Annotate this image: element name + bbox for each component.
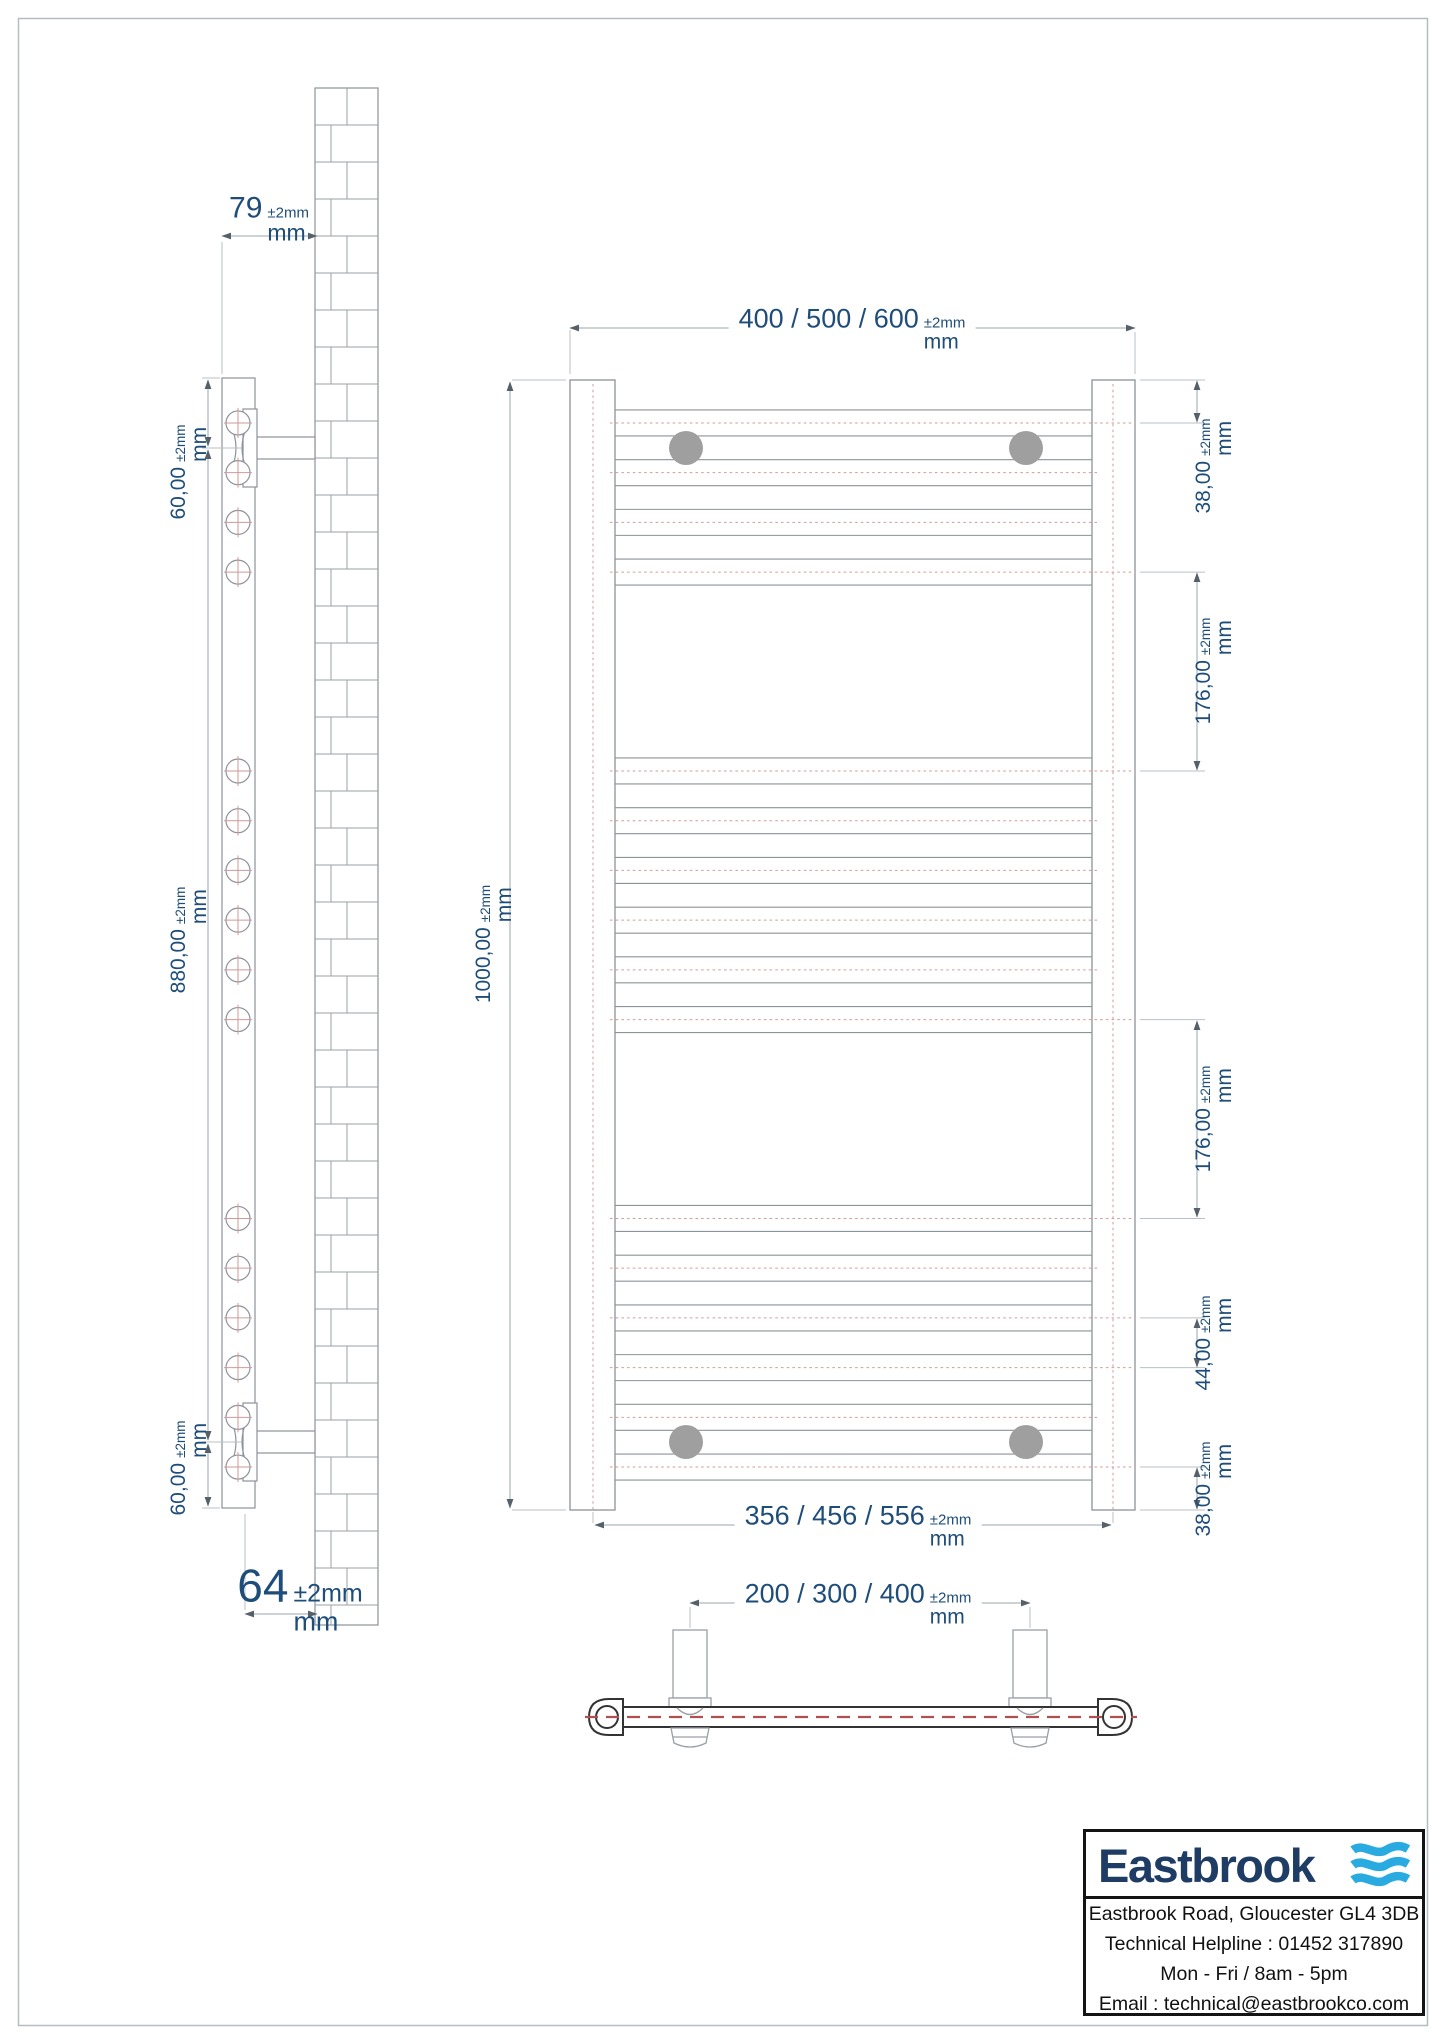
dim-38-top-label: 38,00±2mmmm <box>1192 419 1235 514</box>
mounting-dot <box>669 1425 703 1459</box>
dim-bracket-top-label: 60,00±2mmmm <box>167 425 210 520</box>
dim-wall-offset-label: 79±2mmmm <box>229 192 309 245</box>
front-view <box>570 380 1205 1520</box>
dim-bracket-bottom-label: 60,00±2mmmm <box>167 1421 210 1516</box>
mounting-dot <box>1009 431 1043 465</box>
dim-38-bottom-label: 38,00±2mmmm <box>1192 1442 1235 1537</box>
technical-drawing <box>0 0 1445 2044</box>
manufacturer-info-box: Eastbrook Eastbrook Road, Gloucester GL4… <box>1083 1829 1425 2016</box>
side-view <box>222 88 378 1625</box>
dim-bracket-span-label: 880,00±2mmmm <box>167 887 210 994</box>
dim-depth-label: 64±2mmmm <box>237 1559 362 1636</box>
drawing-sheet: 79±2mmmm 60,00±2mmmm 880,00±2mmmm 60,00±… <box>0 0 1445 2044</box>
eastbrook-waves-icon <box>1350 1842 1410 1890</box>
eastbrook-logo-text: Eastbrook <box>1098 1838 1314 1893</box>
info-email: Email : technical@eastbrookco.com <box>1086 1989 1422 2019</box>
info-address: Eastbrook Road, Gloucester GL4 3DB <box>1086 1899 1422 1929</box>
dim-pipe-centres-label: 356 / 456 / 556±2mmmm <box>735 1501 982 1550</box>
dim-176-lower-label: 176,00±2mmmm <box>1192 1066 1235 1173</box>
mounting-dot <box>1009 1425 1043 1459</box>
mounting-dot <box>669 431 703 465</box>
info-hours: Mon - Fri / 8am - 5pm <box>1086 1959 1422 1989</box>
eastbrook-logo: Eastbrook <box>1086 1832 1422 1896</box>
dim-height-label: 1000,00±2mmmm <box>472 885 515 1003</box>
dim-width-label: 400 / 500 / 600±2mmmm <box>729 304 976 353</box>
info-helpline: Technical Helpline : 01452 317890 <box>1086 1929 1422 1959</box>
dim-176-upper-label: 176,00±2mmmm <box>1192 618 1235 725</box>
dim-44-label: 44,00±2mmmm <box>1192 1296 1235 1391</box>
valve-fitting-right <box>1009 1630 1051 1708</box>
side-rail <box>222 378 255 1508</box>
dim-valve-centres-label: 200 / 300 / 400±2mmmm <box>735 1579 982 1628</box>
valve-fitting-left <box>669 1630 711 1708</box>
